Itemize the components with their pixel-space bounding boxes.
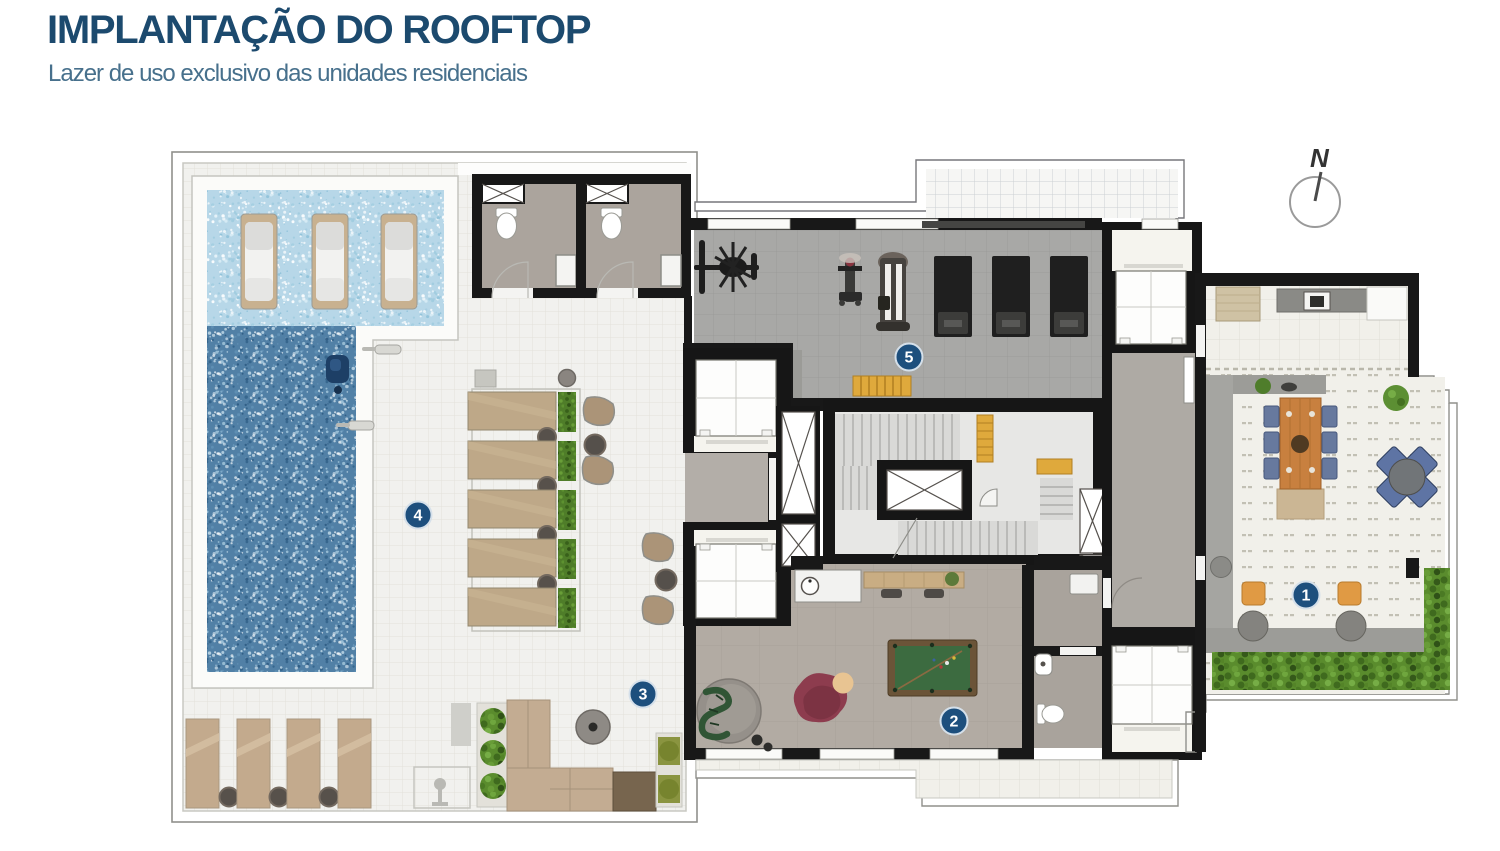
svg-text:4: 4 bbox=[414, 508, 423, 525]
svg-text:N: N bbox=[1310, 143, 1330, 173]
svg-text:1: 1 bbox=[1302, 588, 1311, 605]
svg-text:3: 3 bbox=[639, 687, 648, 704]
svg-text:2: 2 bbox=[950, 714, 959, 731]
svg-text:5: 5 bbox=[905, 350, 914, 367]
